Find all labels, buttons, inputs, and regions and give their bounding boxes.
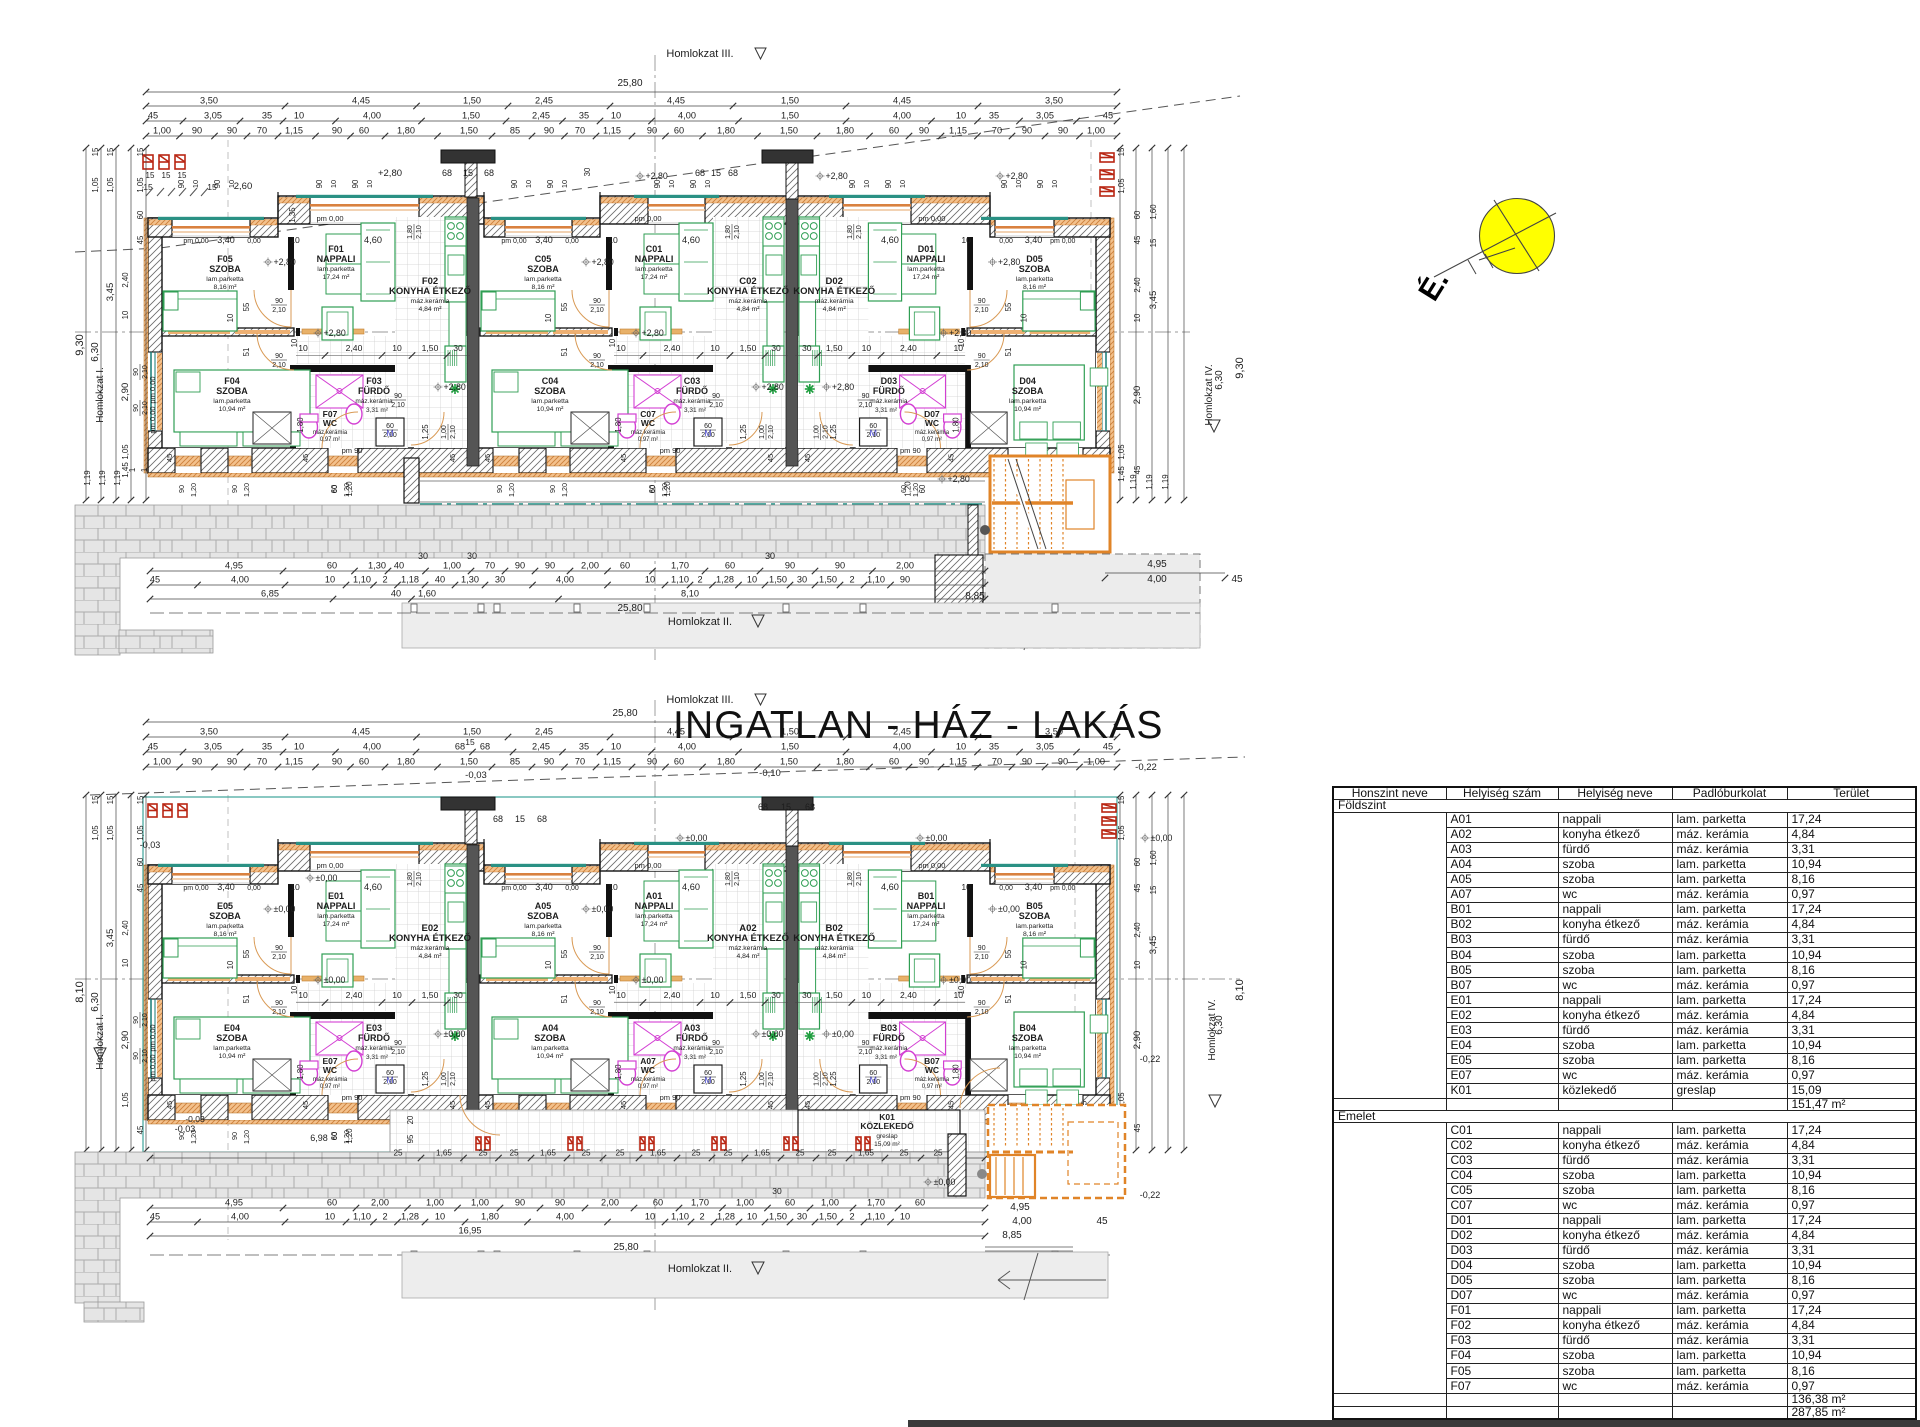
svg-text:10,94 m²: 10,94 m² [537, 1053, 565, 1060]
svg-text:15: 15 [781, 802, 791, 812]
svg-text:17,24 m²: 17,24 m² [913, 921, 941, 928]
svg-text:KÖZLEKEDŐ: KÖZLEKEDŐ [860, 1120, 914, 1131]
svg-text:2,00: 2,00 [371, 1198, 389, 1208]
svg-text:KONYHA ÉTKEZŐ: KONYHA ÉTKEZŐ [793, 932, 875, 944]
svg-text:2,10: 2,10 [701, 432, 715, 439]
svg-text:60: 60 [330, 484, 339, 493]
svg-text:2: 2 [382, 1212, 387, 1222]
svg-text:máz.kerámia: máz.kerámia [411, 945, 450, 952]
svg-text:4,95: 4,95 [1147, 559, 1167, 570]
svg-text:10: 10 [1133, 960, 1142, 969]
svg-text:2,10: 2,10 [383, 432, 397, 439]
svg-text:1,00: 1,00 [814, 425, 821, 439]
svg-text:1,20: 1,20 [345, 481, 354, 497]
svg-text:15: 15 [515, 814, 525, 824]
svg-text:1,05: 1,05 [91, 825, 100, 841]
svg-text:90: 90 [177, 179, 186, 188]
svg-text:1,19: 1,19 [98, 470, 107, 485]
svg-text:45: 45 [619, 454, 628, 462]
svg-text:1,00: 1,00 [821, 1198, 839, 1208]
svg-text:1,80: 1,80 [614, 417, 623, 433]
svg-text:60: 60 [725, 561, 735, 571]
svg-text:pm 0,00: pm 0,00 [316, 214, 343, 223]
svg-text:90: 90 [133, 1016, 140, 1024]
svg-text:0,00: 0,00 [247, 238, 261, 245]
svg-text:SZOBA: SZOBA [527, 911, 559, 921]
svg-text:60: 60 [330, 1131, 339, 1140]
svg-text:2,45: 2,45 [535, 96, 553, 106]
svg-text:1,00: 1,00 [759, 1072, 766, 1086]
svg-text:15: 15 [463, 168, 473, 178]
svg-text:+2,80: +2,80 [274, 257, 296, 267]
svg-text:lam.parketta: lam.parketta [1016, 276, 1054, 283]
svg-text:45: 45 [448, 454, 457, 462]
svg-text:60: 60 [869, 423, 877, 430]
svg-text:2: 2 [697, 575, 702, 585]
svg-text:2,10: 2,10 [416, 225, 423, 239]
svg-text:60: 60 [915, 1198, 925, 1208]
svg-text:1,10: 1,10 [867, 1212, 885, 1222]
svg-text:10: 10 [544, 960, 553, 969]
svg-text:-0,03: -0,03 [175, 1124, 196, 1134]
svg-text:2,90: 2,90 [120, 383, 131, 402]
svg-text:3,40: 3,40 [535, 235, 553, 245]
svg-text:lam.parketta: lam.parketta [531, 398, 569, 405]
svg-text:90: 90 [978, 353, 986, 360]
svg-text:10: 10 [298, 990, 308, 1000]
svg-text:+2,80: +2,80 [1006, 171, 1028, 181]
svg-text:FÜRDŐ: FÜRDŐ [873, 385, 905, 396]
svg-text:10: 10 [608, 235, 618, 245]
svg-text:1,05: 1,05 [136, 825, 145, 841]
svg-text:3,50: 3,50 [1045, 96, 1063, 106]
svg-text:SZOBA: SZOBA [1012, 386, 1044, 396]
svg-text:pm 90: pm 90 [900, 446, 921, 455]
svg-text:45: 45 [946, 1101, 955, 1109]
svg-text:8,85: 8,85 [965, 591, 985, 602]
svg-text:90: 90 [351, 179, 360, 188]
svg-text:pm 0,00: pm 0,00 [918, 861, 945, 870]
svg-text:2,10: 2,10 [391, 1049, 405, 1056]
svg-text:1,28: 1,28 [401, 1212, 419, 1222]
svg-text:1,65: 1,65 [858, 1149, 874, 1158]
svg-text:1,80: 1,80 [717, 126, 735, 136]
svg-text:KONYHA ÉTKEZŐ: KONYHA ÉTKEZŐ [793, 285, 875, 297]
svg-text:pm 0,00: pm 0,00 [183, 238, 208, 245]
svg-text:90: 90 [275, 1000, 283, 1007]
svg-text:Homlokzat IV.: Homlokzat IV. [1204, 364, 1215, 425]
svg-text:+2,80: +2,80 [832, 382, 854, 392]
svg-text:60: 60 [869, 1070, 877, 1077]
svg-text:3,31 m²: 3,31 m² [366, 1054, 389, 1061]
svg-text:2,90: 2,90 [120, 1031, 131, 1050]
svg-text:máz.kerámia: máz.kerámia [870, 398, 908, 405]
svg-text:4,45: 4,45 [893, 96, 911, 106]
svg-text:lam.parketta: lam.parketta [1016, 923, 1054, 930]
svg-text:0,00: 0,00 [565, 238, 579, 245]
svg-text:pm 0,00: pm 0,00 [501, 238, 526, 245]
svg-text:10: 10 [611, 742, 621, 752]
svg-text:1,80: 1,80 [836, 757, 854, 767]
svg-text:F05: F05 [217, 254, 233, 264]
svg-text:1,50: 1,50 [769, 1212, 787, 1222]
svg-text:90: 90 [862, 1040, 870, 1047]
svg-text:45: 45 [301, 454, 310, 462]
svg-text:±0,00: ±0,00 [642, 975, 664, 985]
svg-text:10: 10 [226, 960, 235, 969]
svg-text:90: 90 [546, 179, 555, 188]
svg-text:25: 25 [478, 1149, 488, 1158]
svg-text:greslap: greslap [876, 1133, 898, 1140]
svg-text:+2,80: +2,80 [324, 328, 346, 338]
svg-text:1,25: 1,25 [829, 424, 838, 440]
svg-text:1,65: 1,65 [650, 1149, 666, 1158]
svg-text:3,05: 3,05 [1036, 111, 1054, 121]
svg-text:15: 15 [91, 795, 100, 804]
svg-text:1,00: 1,00 [443, 561, 461, 571]
svg-text:4,00: 4,00 [556, 575, 574, 585]
svg-text:25: 25 [795, 1149, 805, 1158]
svg-text:1,05: 1,05 [1117, 178, 1126, 194]
svg-text:55: 55 [1004, 302, 1013, 311]
svg-text:1,15: 1,15 [603, 126, 621, 136]
svg-text:A01: A01 [646, 891, 663, 901]
svg-text:pm 90: pm 90 [342, 446, 363, 455]
svg-text:35: 35 [579, 742, 589, 752]
svg-text:1,80: 1,80 [847, 225, 854, 239]
svg-text:1,80: 1,80 [397, 757, 415, 767]
svg-text:3,31 m²: 3,31 m² [684, 407, 707, 414]
svg-text:0,97 m²: 0,97 m² [922, 437, 942, 443]
svg-text:1,05: 1,05 [1117, 825, 1126, 841]
svg-text:B04: B04 [1019, 1023, 1036, 1033]
svg-text:51: 51 [1004, 348, 1013, 357]
svg-text:pm 90: pm 90 [342, 1093, 363, 1102]
svg-text:90: 90 [230, 485, 239, 493]
svg-text:25: 25 [615, 1149, 625, 1158]
svg-text:6,98: 6,98 [310, 1133, 328, 1143]
svg-text:máz.kerámia: máz.kerámia [313, 430, 348, 436]
svg-text:15: 15 [91, 147, 100, 156]
svg-text:10: 10 [290, 338, 299, 347]
svg-text:1,19: 1,19 [1161, 474, 1170, 489]
svg-text:90: 90 [133, 368, 140, 376]
svg-text:68: 68 [695, 168, 705, 178]
svg-text:máz.kerámia: máz.kerámia [815, 298, 854, 305]
svg-text:4,00: 4,00 [556, 1212, 574, 1222]
svg-text:2,10: 2,10 [975, 307, 989, 314]
svg-text:10: 10 [227, 180, 236, 188]
svg-text:45: 45 [1133, 465, 1142, 474]
svg-text:90: 90 [515, 561, 525, 571]
svg-text:±0,00: ±0,00 [324, 975, 346, 985]
svg-text:8,16 m²: 8,16 m² [1023, 931, 1047, 938]
svg-text:60: 60 [648, 484, 657, 493]
svg-text:45: 45 [946, 454, 955, 462]
svg-text:E04: E04 [224, 1023, 240, 1033]
svg-text:KONYHA ÉTKEZŐ: KONYHA ÉTKEZŐ [707, 285, 789, 297]
svg-text:2,10: 2,10 [590, 1009, 604, 1016]
svg-text:60: 60 [1133, 857, 1142, 866]
svg-text:1,00: 1,00 [814, 1072, 821, 1086]
svg-text:2,10: 2,10 [975, 954, 989, 961]
svg-text:10: 10 [560, 180, 569, 188]
svg-text:4,60: 4,60 [364, 882, 382, 892]
svg-text:10: 10 [290, 882, 300, 892]
svg-text:lam.parketta: lam.parketta [206, 276, 244, 283]
svg-text:15: 15 [1117, 147, 1126, 156]
svg-text:90: 90 [593, 298, 601, 305]
svg-text:10: 10 [645, 575, 655, 585]
svg-text:70: 70 [257, 757, 267, 767]
svg-text:60: 60 [386, 1070, 394, 1077]
svg-text:máz.kerámia: máz.kerámia [673, 1045, 711, 1052]
svg-text:90: 90 [227, 757, 237, 767]
svg-text:Homlokzat I.: Homlokzat I. [95, 1014, 106, 1070]
svg-text:1,50: 1,50 [422, 990, 439, 1000]
svg-text:+2,80: +2,80 [998, 257, 1020, 267]
svg-text:3,40: 3,40 [535, 882, 553, 892]
svg-text:10: 10 [667, 180, 676, 188]
svg-text:25: 25 [899, 1149, 909, 1158]
svg-text:60: 60 [327, 1198, 337, 1208]
svg-text:1,50: 1,50 [740, 343, 757, 353]
svg-text:25: 25 [827, 1149, 837, 1158]
svg-text:25: 25 [933, 1149, 943, 1158]
svg-text:1,20: 1,20 [189, 483, 198, 497]
svg-text:1,80: 1,80 [614, 1064, 623, 1080]
svg-text:1,50: 1,50 [826, 343, 843, 353]
svg-text:1,80: 1,80 [725, 225, 732, 239]
svg-text:pm 0,00: pm 0,00 [634, 214, 661, 223]
svg-text:1,00: 1,00 [1087, 126, 1105, 136]
svg-text:30: 30 [771, 990, 781, 1000]
svg-text:90: 90 [862, 393, 870, 400]
svg-text:90: 90 [884, 179, 893, 188]
svg-text:2,40: 2,40 [664, 343, 681, 353]
svg-text:60: 60 [889, 126, 899, 136]
svg-text:90: 90 [1058, 757, 1068, 767]
svg-text:10: 10 [608, 882, 618, 892]
svg-text:90: 90 [919, 126, 929, 136]
svg-text:4,84 m²: 4,84 m² [823, 953, 847, 960]
svg-text:90: 90 [785, 561, 795, 571]
svg-text:8,10: 8,10 [681, 589, 699, 599]
svg-text:1,05: 1,05 [121, 1092, 130, 1108]
svg-text:-0,22: -0,22 [1140, 1190, 1161, 1200]
svg-text:90: 90 [192, 126, 202, 136]
svg-text:2,40: 2,40 [900, 990, 917, 1000]
svg-text:10: 10 [616, 343, 626, 353]
svg-text:10: 10 [957, 985, 966, 994]
svg-text:2,10: 2,10 [272, 307, 286, 314]
svg-text:1,80: 1,80 [296, 417, 305, 433]
svg-text:1,25: 1,25 [421, 424, 430, 440]
svg-text:1,50: 1,50 [780, 126, 798, 136]
svg-text:0,00: 0,00 [565, 885, 579, 892]
svg-text:1,80: 1,80 [407, 225, 414, 239]
svg-text:4,45: 4,45 [667, 96, 685, 106]
svg-text:30: 30 [583, 167, 592, 176]
svg-text:30: 30 [765, 551, 775, 561]
svg-text:1,60: 1,60 [1149, 204, 1158, 220]
svg-text:4,00: 4,00 [678, 111, 696, 121]
svg-text:15: 15 [1149, 238, 1158, 247]
svg-text:30: 30 [771, 343, 781, 353]
svg-text:SZOBA: SZOBA [216, 386, 248, 396]
svg-text:55: 55 [1004, 949, 1013, 958]
svg-text:90: 90 [835, 561, 845, 571]
svg-text:70: 70 [992, 757, 1002, 767]
svg-text:8,16 m²: 8,16 m² [213, 284, 237, 291]
svg-text:+2,80: +2,80 [646, 171, 668, 181]
svg-text:4,84 m²: 4,84 m² [418, 953, 442, 960]
svg-text:68: 68 [484, 168, 494, 178]
svg-text:4,60: 4,60 [682, 235, 700, 245]
svg-text:1,18: 1,18 [401, 575, 419, 585]
svg-text:15: 15 [146, 171, 155, 180]
svg-text:90: 90 [555, 1198, 565, 1208]
svg-text:10: 10 [392, 990, 402, 1000]
svg-text:±0,00: ±0,00 [926, 833, 948, 843]
svg-text:1,10: 1,10 [671, 575, 689, 585]
svg-text:2,10: 2,10 [590, 307, 604, 314]
svg-text:2,10: 2,10 [709, 402, 723, 409]
svg-text:10: 10 [957, 338, 966, 347]
svg-text:SZOBA: SZOBA [534, 1033, 566, 1043]
svg-text:10: 10 [294, 742, 304, 752]
svg-text:lam.parketta: lam.parketta [213, 398, 251, 405]
svg-text:90: 90 [653, 179, 662, 188]
svg-text:1,10: 1,10 [353, 575, 371, 585]
svg-text:1,00: 1,00 [153, 757, 171, 767]
svg-text:2,10: 2,10 [866, 432, 880, 439]
svg-text:30: 30 [802, 990, 812, 1000]
svg-text:40: 40 [394, 561, 404, 571]
svg-text:90: 90 [192, 757, 202, 767]
svg-text:2,10: 2,10 [859, 1049, 873, 1056]
svg-text:1,50: 1,50 [769, 575, 787, 585]
svg-text:0,97 m²: 0,97 m² [320, 437, 340, 443]
svg-text:1,50: 1,50 [422, 343, 439, 353]
svg-text:90: 90 [978, 1000, 986, 1007]
svg-text:10: 10 [1133, 313, 1142, 322]
svg-text:NAPPALI: NAPPALI [317, 254, 356, 264]
svg-text:2,10: 2,10 [823, 1072, 830, 1086]
svg-text:+2,80: +2,80 [949, 328, 971, 338]
svg-text:±0,00: ±0,00 [1151, 833, 1173, 843]
svg-text:90: 90 [1022, 126, 1032, 136]
svg-text:10,94 m²: 10,94 m² [1014, 1053, 1042, 1060]
svg-text:C01: C01 [646, 244, 663, 254]
svg-text:35: 35 [579, 111, 589, 121]
svg-text:10: 10 [298, 343, 308, 353]
svg-text:4,95: 4,95 [1010, 1202, 1030, 1213]
svg-text:±0,00: ±0,00 [762, 1029, 784, 1039]
svg-text:2,10: 2,10 [734, 872, 741, 886]
svg-text:25: 25 [581, 1149, 591, 1158]
svg-text:3,45: 3,45 [105, 929, 116, 948]
svg-text:10: 10 [524, 180, 533, 188]
svg-text:2,10: 2,10 [768, 1072, 775, 1086]
svg-text:45: 45 [766, 1101, 775, 1109]
svg-text:68: 68 [537, 814, 547, 824]
svg-text:2,10: 2,10 [450, 425, 457, 439]
svg-text:10: 10 [961, 235, 971, 245]
svg-text:10: 10 [710, 343, 720, 353]
svg-text:Homlokzat IV.: Homlokzat IV. [1207, 999, 1218, 1060]
svg-text:2,00: 2,00 [896, 561, 914, 571]
svg-text:4,60: 4,60 [364, 235, 382, 245]
svg-text:2,45: 2,45 [535, 727, 553, 737]
svg-text:0,97 m²: 0,97 m² [922, 1084, 942, 1090]
svg-text:90: 90 [544, 126, 554, 136]
svg-text:lam.parketta: lam.parketta [317, 266, 355, 273]
svg-text:SZOBA: SZOBA [209, 264, 241, 274]
svg-text:+2,80: +2,80 [378, 168, 402, 179]
svg-text:10: 10 [1020, 313, 1029, 322]
svg-text:51: 51 [560, 348, 569, 357]
svg-text:10: 10 [544, 313, 553, 322]
svg-text:0,97 m²: 0,97 m² [638, 437, 658, 443]
svg-text:68: 68 [493, 814, 503, 824]
svg-text:8,16 m²: 8,16 m² [1023, 284, 1047, 291]
svg-text:1,60: 1,60 [418, 589, 436, 599]
svg-text:SZOBA: SZOBA [534, 386, 566, 396]
svg-text:90: 90 [227, 126, 237, 136]
svg-text:55: 55 [242, 949, 251, 958]
svg-text:1,70: 1,70 [671, 561, 689, 571]
svg-text:35: 35 [262, 742, 272, 752]
svg-text:17,24 m²: 17,24 m² [323, 921, 351, 928]
svg-text:2,10: 2,10 [272, 1009, 286, 1016]
svg-text:2: 2 [699, 1212, 704, 1222]
svg-text:90: 90 [647, 126, 657, 136]
svg-text:lam.parketta: lam.parketta [907, 913, 945, 920]
svg-text:C05: C05 [535, 254, 552, 264]
svg-text:6,30: 6,30 [90, 342, 101, 362]
svg-text:SZOBA: SZOBA [1012, 1033, 1044, 1043]
svg-text:25: 25 [691, 1149, 701, 1158]
svg-text:1,15: 1,15 [285, 126, 303, 136]
svg-text:1,80: 1,80 [951, 417, 960, 433]
svg-text:60: 60 [889, 757, 899, 767]
svg-text:2,90: 2,90 [1132, 1031, 1143, 1050]
svg-text:4,84 m²: 4,84 m² [736, 306, 760, 313]
svg-text:-0,10: -0,10 [759, 768, 781, 779]
svg-text:10: 10 [710, 990, 720, 1000]
svg-text:±0,00: ±0,00 [949, 975, 971, 985]
svg-text:6,30: 6,30 [90, 992, 101, 1012]
svg-text:90: 90 [275, 298, 283, 305]
svg-text:2,40: 2,40 [346, 990, 363, 1000]
svg-text:F01: F01 [328, 244, 344, 254]
svg-text:45: 45 [1103, 111, 1113, 121]
svg-text:2,10: 2,10 [734, 225, 741, 239]
svg-text:-0,03: -0,03 [185, 1114, 205, 1124]
svg-text:pm 90: pm 90 [900, 1093, 921, 1102]
svg-text:1: 1 [140, 468, 149, 472]
svg-text:10: 10 [121, 958, 130, 967]
svg-text:45: 45 [148, 111, 158, 121]
svg-text:9,30: 9,30 [1234, 357, 1246, 378]
svg-text:±0,00: ±0,00 [316, 873, 338, 883]
svg-text:1,00: 1,00 [759, 425, 766, 439]
svg-text:1,50: 1,50 [740, 990, 757, 1000]
svg-text:1,19: 1,19 [1129, 474, 1138, 489]
svg-text:2,10: 2,10 [416, 872, 423, 886]
svg-text:16,95: 16,95 [459, 1226, 482, 1236]
